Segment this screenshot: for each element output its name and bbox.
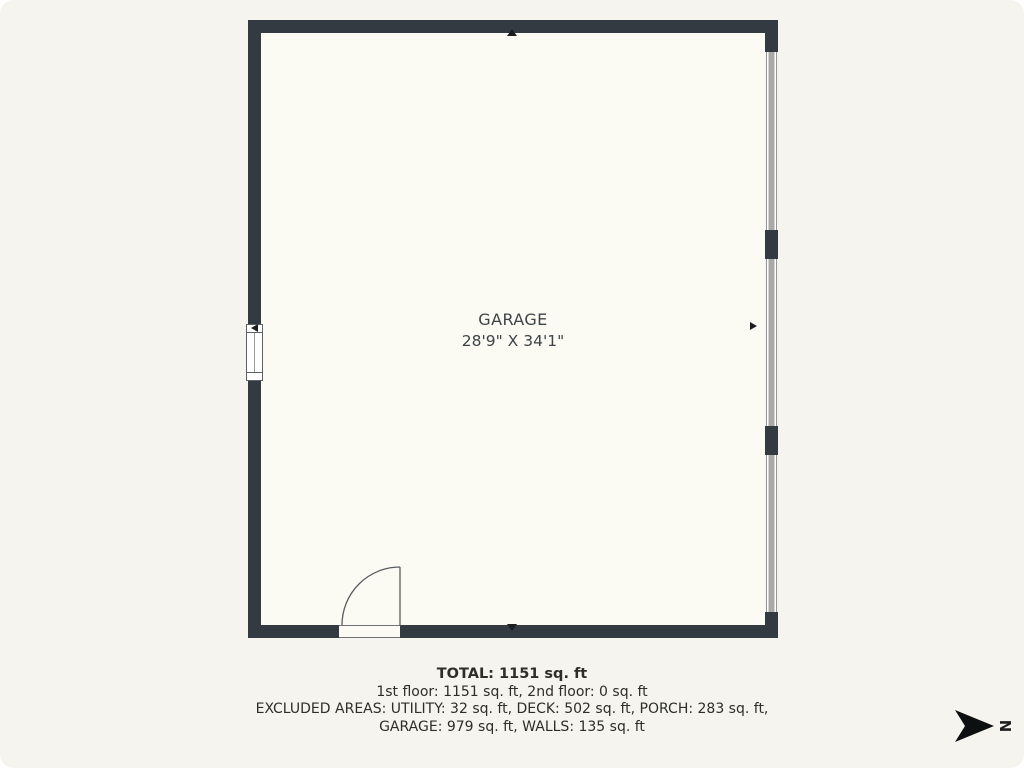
wall-right-segment-1 [765,20,778,52]
wall-left-lower-segment [248,380,261,638]
window-frame-line [247,372,262,373]
compass-letter: N [996,720,1014,733]
room-dimensions: 28'9" X 34'1" [261,332,765,350]
window-right-lower [766,455,777,612]
wall-right-segment-2 [765,230,778,259]
summary-total: TOTAL: 1151 sq. ft [0,666,1024,684]
wall-right-segment-4 [765,612,778,638]
summary-excluded-line1: EXCLUDED AREAS: UTILITY: 32 sq. ft, DECK… [0,701,1024,719]
window-pane-line [254,333,255,372]
summary-excluded-line2: GARAGE: 979 sq. ft, WALLS: 135 sq. ft [0,719,1024,737]
dimension-arrow-down-icon [507,624,517,631]
door-threshold [339,625,400,638]
wall-bottom-right-segment [400,625,778,638]
dimension-arrow-left-icon [251,324,258,332]
summary-floors: 1st floor: 1151 sq. ft, 2nd floor: 0 sq.… [0,684,1024,702]
room-label-group: GARAGE 28'9" X 34'1" [261,310,765,350]
north-arrow-icon: N [948,706,1020,752]
room-name: GARAGE [261,310,765,329]
window-right-upper [766,52,777,230]
wall-bottom-left-segment [248,625,339,638]
window-right-middle [766,259,777,426]
wall-right-segment-3 [765,426,778,455]
wall-left-upper-segment [248,20,261,325]
floorplan-canvas: GARAGE 28'9" X 34'1" TOTAL: 1151 sq. ft … [0,0,1024,768]
dimension-arrow-up-icon [507,29,517,36]
area-summary: TOTAL: 1151 sq. ft 1st floor: 1151 sq. f… [0,666,1024,736]
